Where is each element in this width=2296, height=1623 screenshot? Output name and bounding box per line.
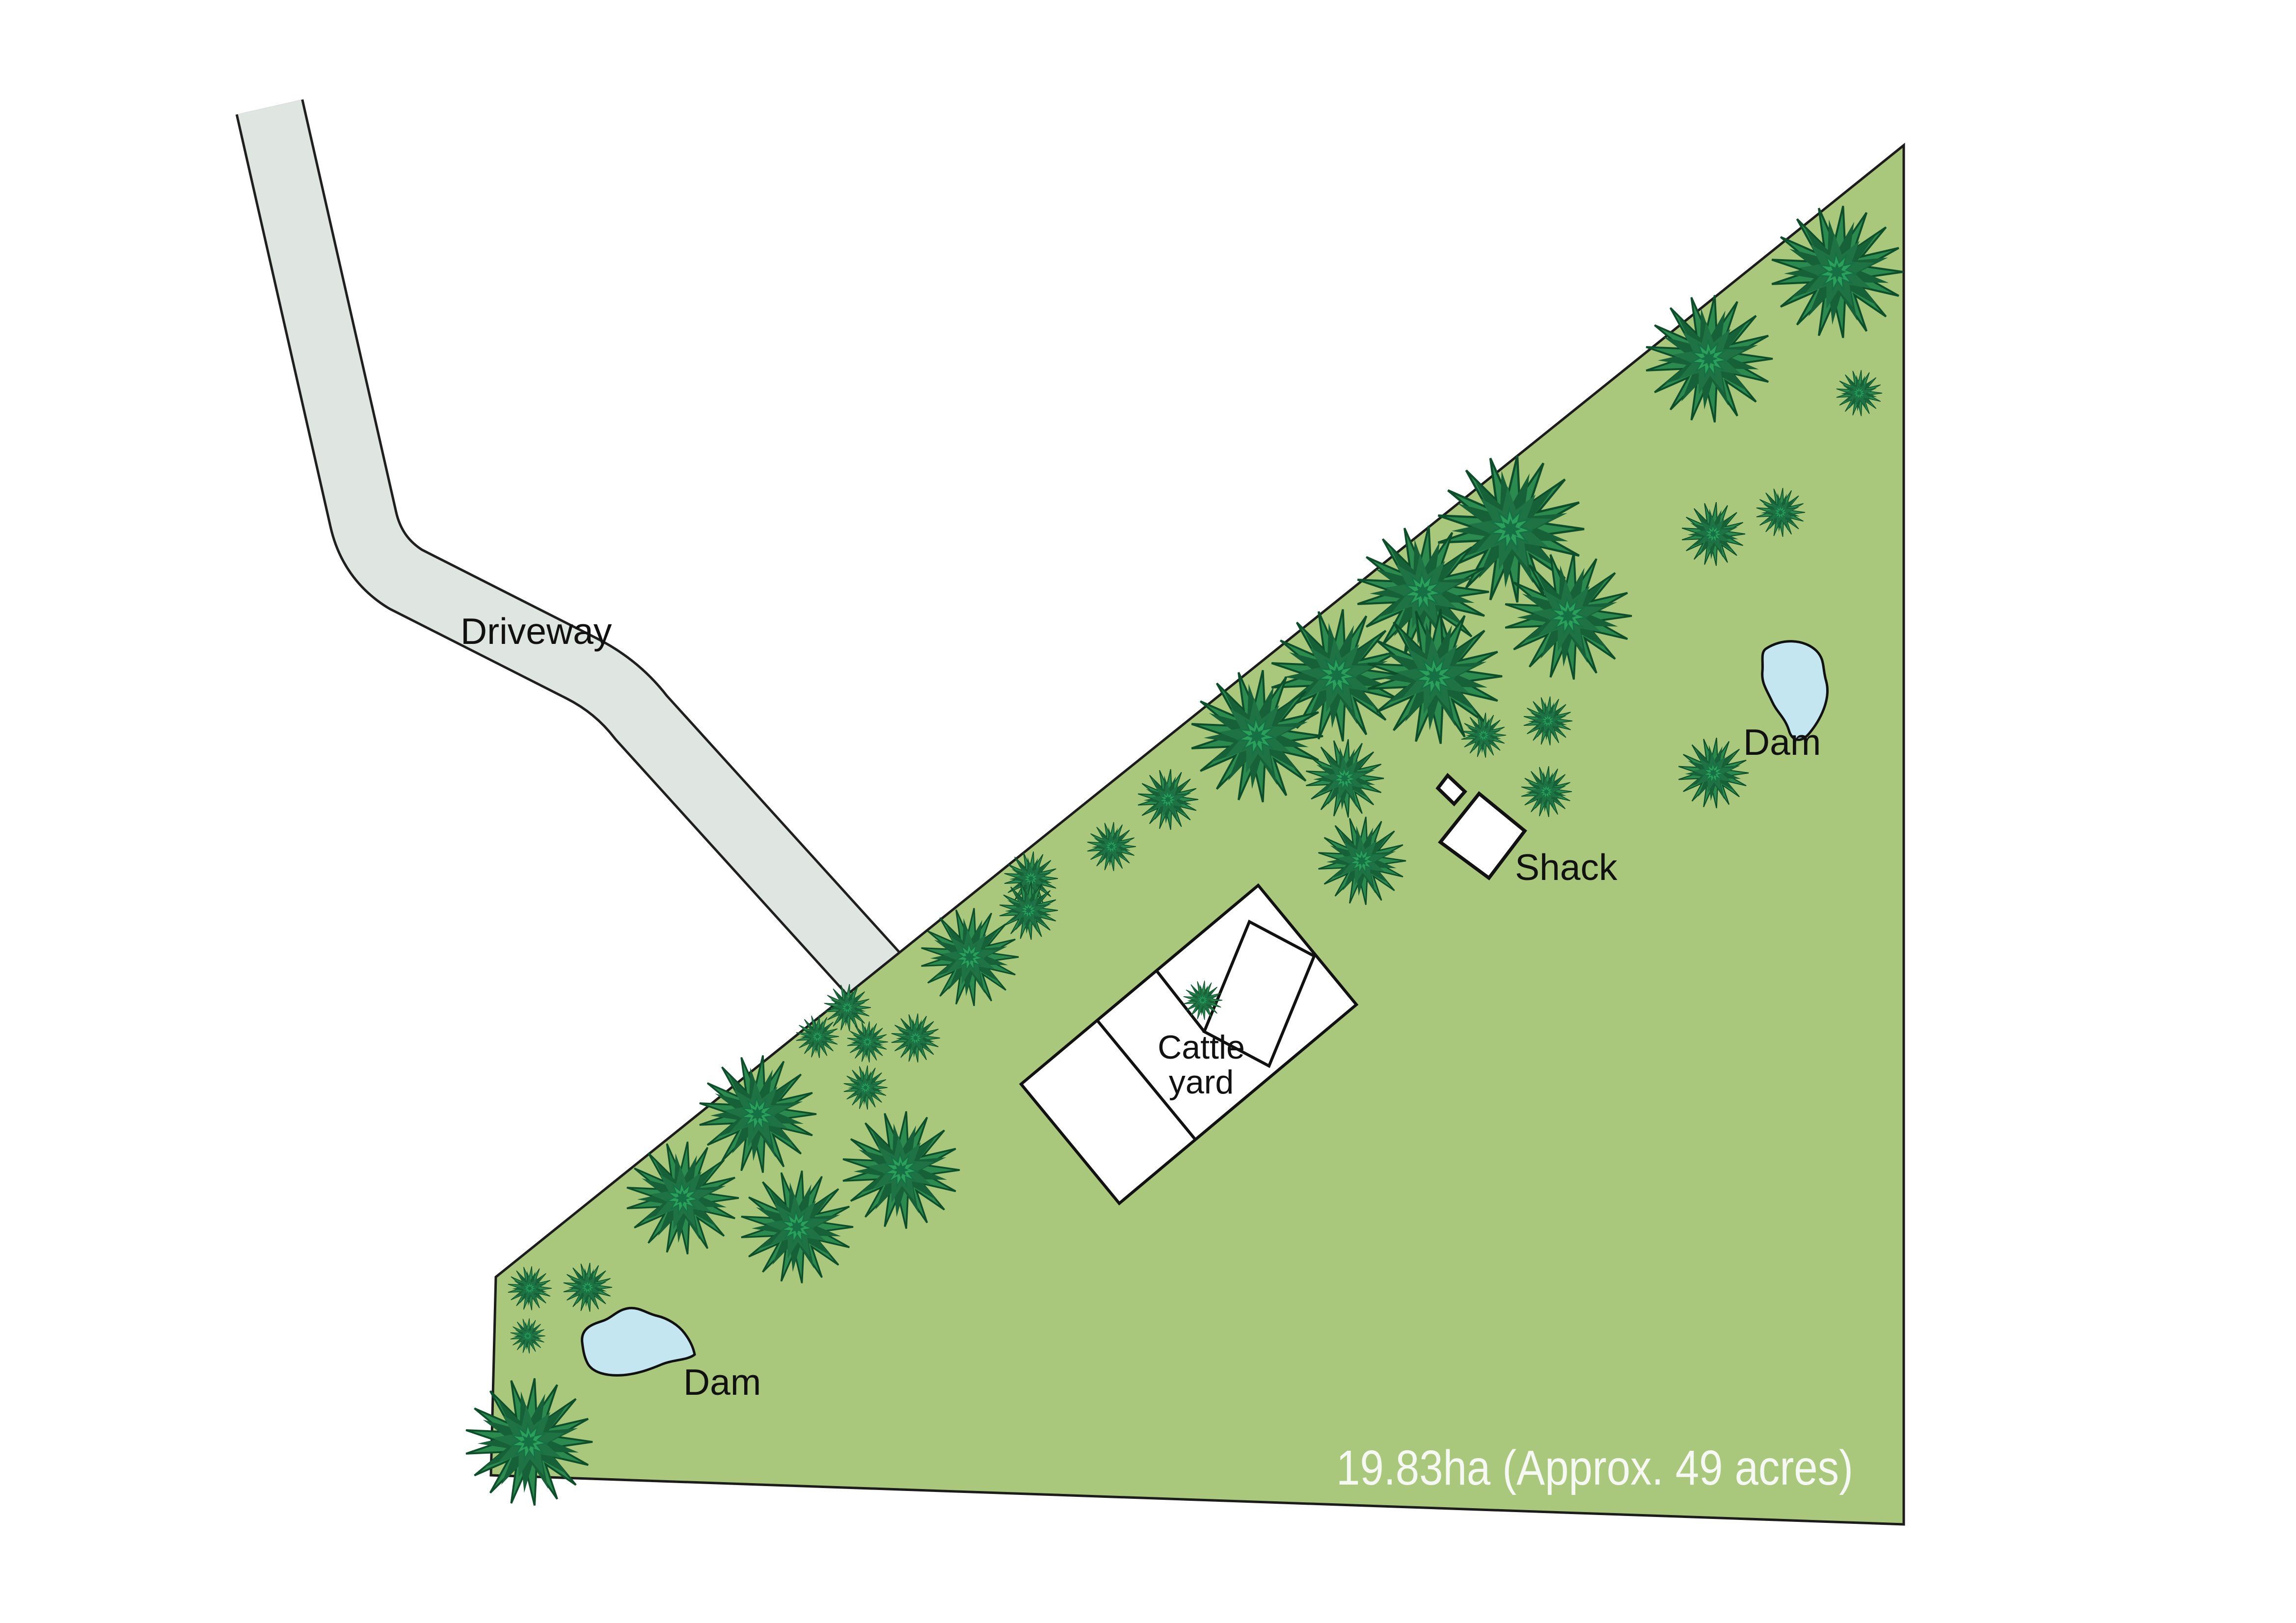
cattle-yard-label-line1: Cattle bbox=[1158, 1029, 1245, 1066]
dam-south-label: Dam bbox=[683, 1361, 761, 1403]
shack-label: Shack bbox=[1515, 847, 1618, 888]
driveway-label: Driveway bbox=[460, 611, 612, 652]
dam-north-label: Dam bbox=[1743, 721, 1821, 763]
site-plan-canvas: Driveway Dam Shack Cattle yard Dam 19.83… bbox=[0, 0, 2296, 1623]
area-size-label: 19.83ha (Approx. 49 acres) bbox=[1336, 1440, 1853, 1495]
property-map: Driveway Dam Shack Cattle yard Dam 19.83… bbox=[0, 0, 2296, 1623]
cattle-yard-label-line2: yard bbox=[1169, 1064, 1234, 1101]
